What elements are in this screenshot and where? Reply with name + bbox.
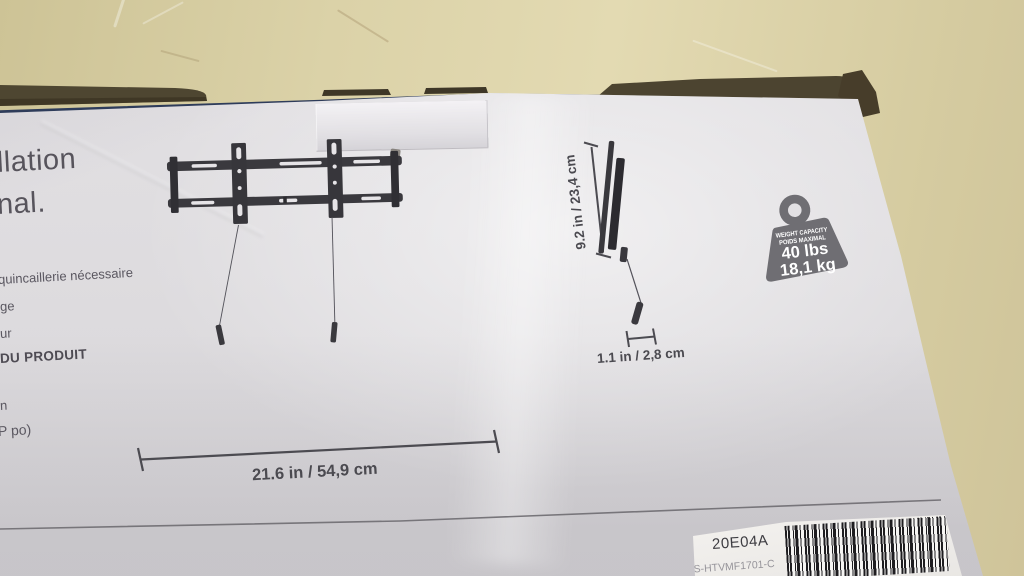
mount-side-view-drawing: 9.2 in / 23,4 cm — [550, 130, 710, 380]
pull-strap-right-tip — [330, 322, 337, 343]
depth-dimension-line — [628, 337, 655, 340]
height-dimension-label: 9.2 in / 23,4 cm — [562, 154, 589, 250]
mount-left-endcap — [170, 157, 179, 213]
side-pull-strap — [627, 259, 641, 303]
pull-strap-left-tip — [215, 324, 225, 345]
panel-spec-line: P po) — [0, 421, 32, 439]
model-number: NS-HTVMF1701-C — [686, 558, 775, 576]
pull-strap-right — [332, 217, 335, 322]
side-pull-strap-tip — [631, 301, 644, 325]
mount-front-view-drawing — [130, 135, 520, 455]
panel-headline-line2: nal. — [0, 186, 47, 222]
table-scratch — [142, 1, 184, 24]
panel-list-line: quincaillerie nécessaire — [0, 265, 133, 287]
barcode — [784, 516, 949, 576]
mount-right-endcap — [390, 151, 399, 207]
batch-code: 20E04A — [711, 532, 768, 553]
cardboard-tab — [424, 87, 488, 94]
panel-headline-line1: llation — [0, 143, 77, 180]
panel-spec-line: n — [0, 398, 8, 413]
cardboard-tab — [322, 89, 391, 96]
panel-section-heading: DU PRODUIT — [0, 346, 87, 366]
pull-strap-left — [220, 225, 239, 326]
panel-list-line: ur — [0, 325, 12, 341]
weight-icon: WEIGHT CAPACITY POIDS MAXIMAL 40 lbs 18,… — [752, 182, 872, 292]
table-scratch — [113, 0, 126, 28]
photo-scene: llation nal. quincaillerie nécessaire ge… — [0, 0, 1024, 576]
width-dimension-line — [125, 425, 515, 495]
panel-list-line: ge — [0, 298, 15, 314]
table-scratch — [337, 9, 389, 42]
